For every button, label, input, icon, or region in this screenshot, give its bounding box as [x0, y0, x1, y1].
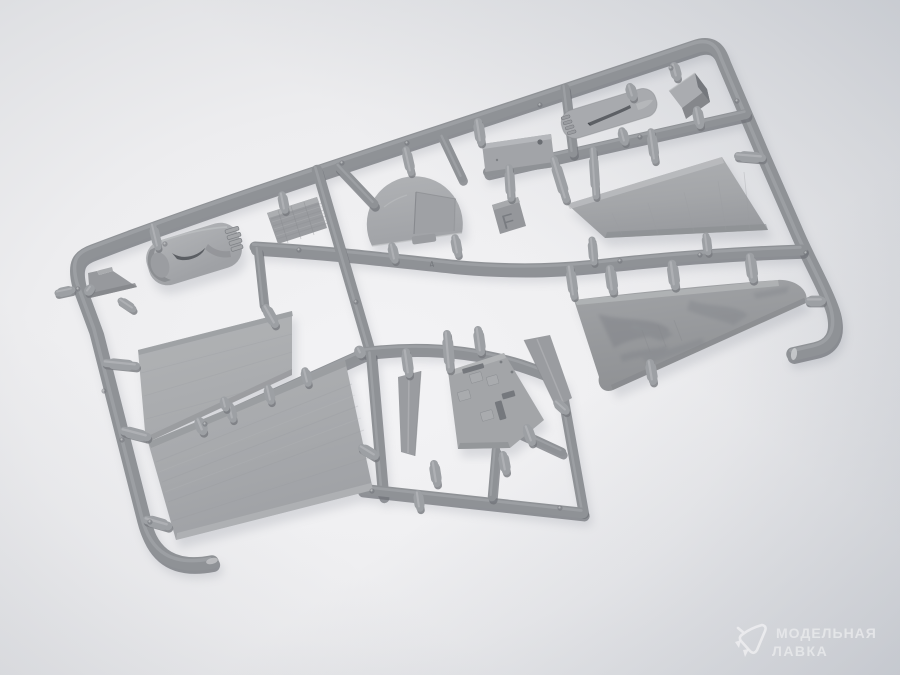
- svg-text:ЛАВКА: ЛАВКА: [772, 643, 828, 659]
- svg-text:МОДЕЛЬНАЯ: МОДЕЛЬНАЯ: [776, 625, 877, 641]
